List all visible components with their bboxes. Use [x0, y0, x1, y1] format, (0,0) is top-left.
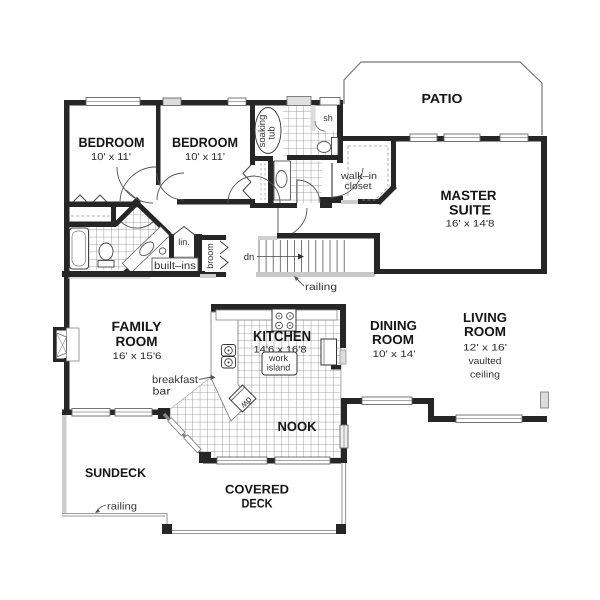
svg-text:SUITE: SUITE: [449, 203, 491, 218]
svg-text:bar: bar: [153, 386, 172, 398]
svg-text:NOOK: NOOK: [278, 419, 317, 434]
svg-text:FAMILY: FAMILY: [112, 319, 162, 334]
svg-text:built–ins: built–ins: [154, 260, 196, 272]
svg-text:ROOM: ROOM: [372, 332, 414, 347]
svg-text:10' x 11': 10' x 11': [185, 152, 225, 163]
svg-text:ROOM: ROOM: [116, 334, 158, 349]
svg-text:16' x 15'6: 16' x 15'6: [113, 351, 162, 362]
svg-text:tub: tub: [267, 126, 278, 139]
svg-text:MASTER: MASTER: [441, 188, 497, 203]
svg-text:10' x 11': 10' x 11': [91, 152, 131, 163]
svg-text:vaulted: vaulted: [469, 356, 502, 367]
svg-text:breakfast: breakfast: [152, 374, 198, 386]
svg-text:broom: broom: [205, 243, 215, 269]
svg-text:LIVING: LIVING: [463, 310, 507, 325]
svg-text:DECK: DECK: [242, 497, 273, 511]
svg-text:16' x 14'8: 16' x 14'8: [446, 219, 495, 230]
svg-text:ROOM: ROOM: [464, 324, 506, 339]
svg-text:COVERED: COVERED: [225, 483, 289, 497]
svg-text:ceiling: ceiling: [470, 370, 500, 381]
svg-text:10' x 14': 10' x 14': [373, 349, 416, 360]
svg-text:lin.: lin.: [178, 237, 190, 247]
svg-text:12' x 16': 12' x 16': [463, 343, 507, 354]
svg-text:railing: railing: [305, 282, 337, 293]
svg-text:island: island: [267, 363, 291, 373]
svg-text:railing: railing: [107, 502, 137, 513]
svg-text:work: work: [268, 353, 289, 363]
svg-text:BEDROOM: BEDROOM: [172, 135, 238, 150]
svg-text:SUNDECK: SUNDECK: [85, 466, 146, 480]
svg-text:KITCHEN: KITCHEN: [253, 329, 311, 345]
svg-text:BEDROOM: BEDROOM: [79, 135, 145, 150]
svg-text:DINING: DINING: [370, 318, 417, 333]
svg-text:dn: dn: [244, 252, 255, 263]
svg-text:sh: sh: [323, 113, 333, 123]
svg-text:PATIO: PATIO: [422, 91, 463, 106]
svg-text:closet: closet: [345, 181, 372, 192]
